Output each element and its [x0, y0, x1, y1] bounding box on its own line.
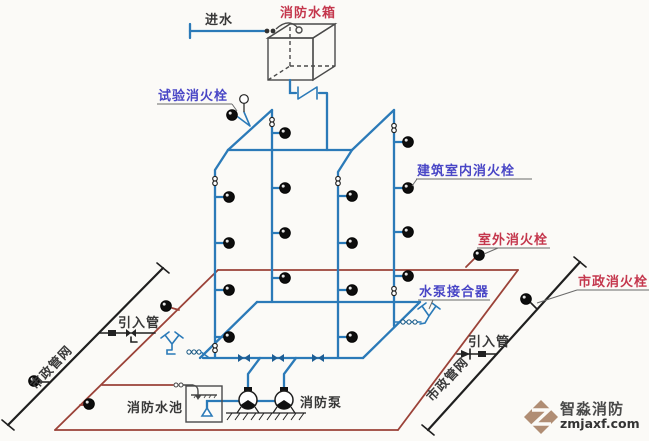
roof-main	[228, 110, 394, 150]
test-hydrant-label: 试验消火栓	[158, 88, 228, 104]
hydrant-icon	[227, 110, 238, 121]
watermark-site: zmjaxf.com	[560, 416, 640, 431]
municipal-network-right-label: 市政管网	[423, 354, 471, 404]
test-hydrant-assembly	[227, 95, 250, 126]
valve-icon	[312, 354, 324, 362]
water-inlet-label: 进水	[205, 12, 233, 28]
schematic-canvas: 进水 消防水箱 试验消火栓 建筑室内消火栓 水泵接合器 室外消火栓 市政消火栓 …	[0, 0, 649, 441]
pressure-gauge-icon	[240, 95, 249, 104]
fire-pump-2	[273, 387, 295, 413]
fire-pump-1	[237, 387, 259, 413]
riser-3	[338, 150, 352, 358]
outdoor-hydrant-label: 室外消火栓	[478, 232, 548, 248]
indoor-hydrant-label: 建筑室内消火栓	[417, 163, 515, 179]
ground-hatching	[226, 413, 306, 420]
fire-water-tank-label: 消防水箱	[280, 5, 336, 21]
riser-2	[272, 110, 279, 302]
fire-water-pool-box	[186, 386, 222, 422]
pump-adapter-label: 水泵接合器	[419, 284, 489, 300]
inlet-pipe-right-label: 引入管	[468, 334, 510, 350]
valve-icon	[238, 354, 250, 362]
fire-water-tank-box	[268, 24, 335, 80]
riser-1	[215, 150, 228, 358]
valve-icon	[272, 354, 284, 362]
municipal-network-left-label: 市政管网	[27, 342, 75, 392]
fire-pump-label: 消防泵	[300, 395, 342, 411]
inlet-pipe-left-label: 引入管	[118, 315, 160, 331]
watermark: 智淼消防 zmjaxf.com	[524, 400, 640, 434]
pump-adapter-left	[161, 332, 208, 357]
tank-outlet-check-valve	[290, 80, 327, 150]
municipal-hydrant-label: 市政消火栓	[578, 274, 648, 290]
indoor-hydrants	[224, 128, 414, 343]
bottom-ring-main	[200, 302, 420, 362]
fire-protection-schematic: 进水 消防水箱 试验消火栓 建筑室内消火栓 水泵接合器 室外消火栓 市政消火栓 …	[0, 0, 649, 441]
fire-water-pool-label: 消防水池	[127, 400, 183, 416]
